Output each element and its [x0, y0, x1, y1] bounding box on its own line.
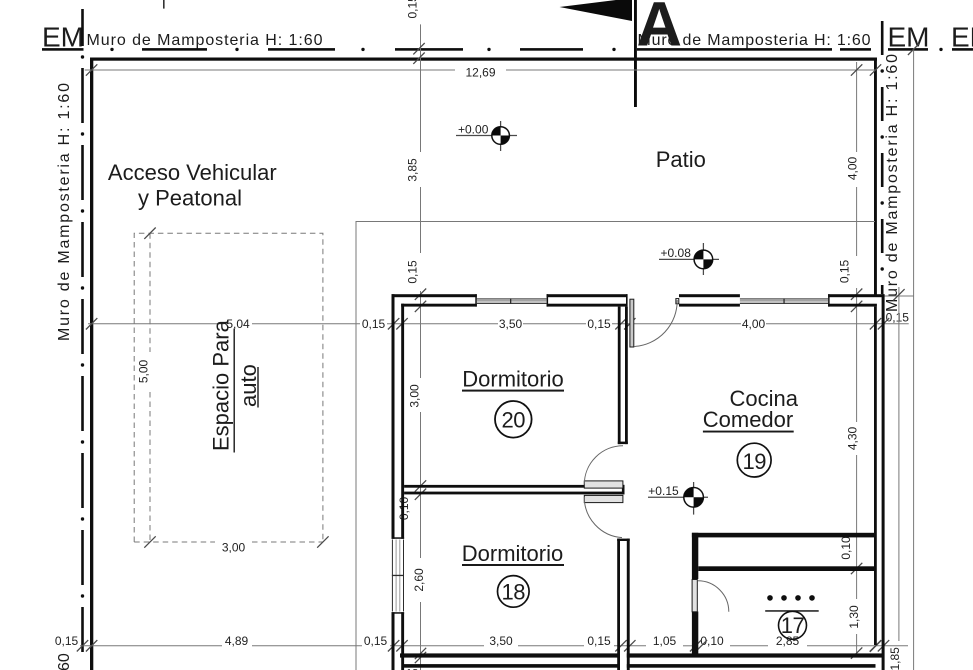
- svg-text:y Peatonal: y Peatonal: [138, 186, 242, 211]
- svg-text:0,15: 0,15: [838, 259, 852, 283]
- svg-text:60: 60: [56, 653, 73, 670]
- svg-text:20: 20: [502, 408, 526, 433]
- svg-text:19: 19: [742, 449, 766, 474]
- svg-text:17: 17: [781, 613, 805, 638]
- svg-text:Comedor: Comedor: [703, 407, 793, 432]
- svg-text:18: 18: [502, 579, 526, 604]
- svg-text:2,60: 2,60: [412, 568, 426, 592]
- svg-text:0,15: 0,15: [406, 0, 420, 19]
- svg-text:Muro de Mamposteria H: 1:60: Muro de Mamposteria H: 1:60: [884, 54, 901, 312]
- svg-text:Espacio Para: Espacio Para: [209, 319, 234, 451]
- svg-text:0,15: 0,15: [362, 317, 386, 331]
- svg-text:Dormitorio: Dormitorio: [462, 541, 563, 566]
- svg-text:0,15: 0,15: [886, 311, 910, 325]
- svg-text:Muro de Mamposteria H: 1:60: Muro de Mamposteria H: 1:60: [638, 32, 871, 49]
- svg-text:auto: auto: [236, 364, 261, 407]
- svg-text:0,10: 0,10: [839, 536, 853, 560]
- svg-text:3,50: 3,50: [489, 634, 513, 648]
- svg-text:4,89: 4,89: [225, 634, 249, 648]
- svg-text:Muro de Mamposteria H: 1:60: Muro de Mamposteria H: 1:60: [87, 32, 323, 49]
- svg-text:EM: EM: [888, 21, 930, 52]
- svg-text:0,15: 0,15: [406, 260, 420, 284]
- svg-text:Muro de Mamposteria H: 1:60: Muro de Mamposteria H: 1:60: [56, 83, 73, 341]
- svg-text:Acceso Vehicular: Acceso Vehicular: [108, 160, 277, 185]
- svg-text:3,50: 3,50: [499, 317, 523, 331]
- svg-text:0,15: 0,15: [587, 317, 611, 331]
- svg-text:0,10: 0,10: [700, 634, 724, 648]
- svg-text:3,00: 3,00: [222, 541, 246, 555]
- svg-text:4,00: 4,00: [846, 156, 860, 180]
- svg-text:5,00: 5,00: [137, 359, 151, 383]
- svg-text:1,05: 1,05: [653, 634, 677, 648]
- svg-text:EM: EM: [951, 21, 973, 52]
- svg-text:Dormitorio: Dormitorio: [462, 367, 563, 392]
- svg-text:+0.00: +0.00: [458, 122, 489, 136]
- svg-text:0,15: 0,15: [364, 634, 388, 648]
- svg-text:4,30: 4,30: [846, 426, 860, 450]
- svg-text:12,69: 12,69: [465, 66, 495, 80]
- svg-text:1,85: 1,85: [888, 647, 902, 670]
- svg-text:3,00: 3,00: [408, 384, 422, 408]
- svg-text:Patio: Patio: [656, 147, 706, 172]
- svg-text:0,15: 0,15: [587, 634, 611, 648]
- svg-text:+0.15: +0.15: [648, 484, 679, 498]
- svg-text:+0.08: +0.08: [661, 246, 692, 260]
- svg-text:EM: EM: [42, 21, 84, 52]
- svg-text:4,00: 4,00: [742, 317, 766, 331]
- svg-text:1,30: 1,30: [847, 605, 861, 629]
- svg-text:0,15: 0,15: [55, 634, 79, 648]
- svg-text:3,85: 3,85: [406, 158, 420, 182]
